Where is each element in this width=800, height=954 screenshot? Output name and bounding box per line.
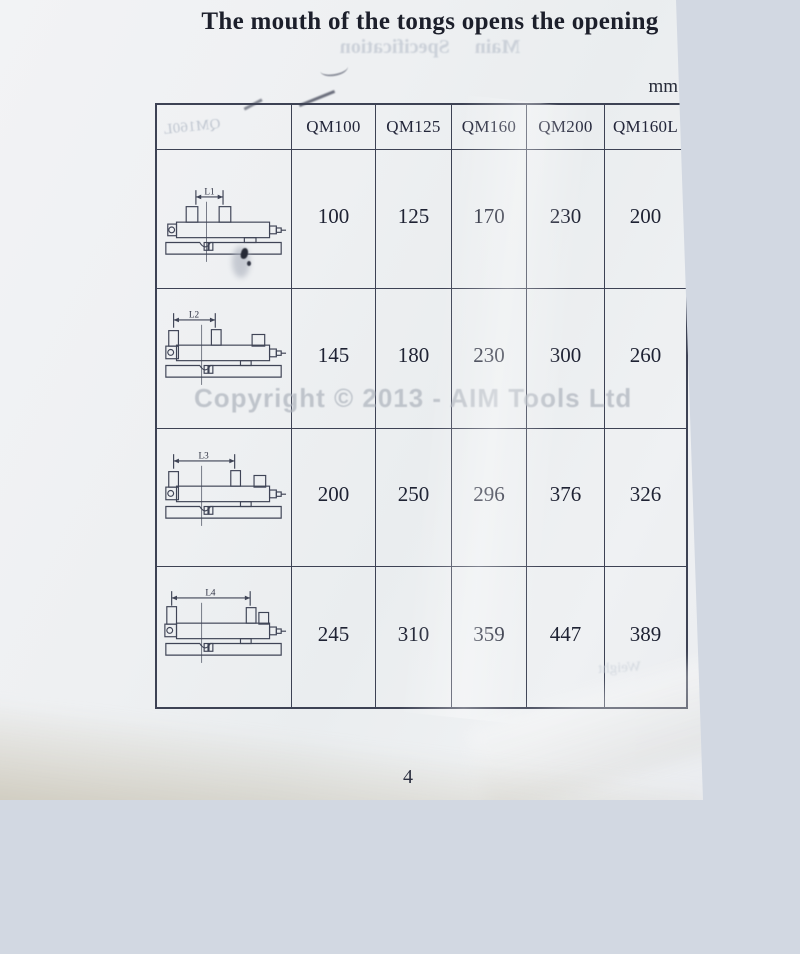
column-header-qm125: QM125 [376,105,452,150]
vise-diagram-l4: L4 [157,567,292,707]
table-cell: 296 [452,429,527,567]
unit-label: mm [628,76,678,98]
table-cell: 100 [292,150,376,289]
table-cell: 359 [452,567,527,707]
page-title: The mouth of the tongs opens the opening [175,8,685,36]
table-cell: 125 [376,150,452,289]
bleedthrough-text: QM160L [162,116,221,139]
column-header-qm100: QM100 [292,105,376,150]
table-cell: 447 [527,567,605,707]
table-cell: 200 [292,429,376,567]
table-cell: 230 [527,150,605,289]
dimension-label: L3 [199,450,210,460]
column-header-qm160l: QM160L [605,105,686,150]
dimension-label: L1 [204,187,215,197]
bleedthrough-main-specification: Main Specification [285,36,575,59]
column-header-qm200: QM200 [527,105,605,150]
table-cell: 250 [376,429,452,567]
page-number: 4 [388,766,428,789]
table-cell: 326 [605,429,686,567]
vise-diagram-l3: L3 [157,429,292,567]
dimension-label: L2 [189,309,200,319]
table-cell: 245 [292,567,376,707]
document-page: Main Specification The mouth of the tong… [0,0,800,800]
table-corner-cell: QM160L [157,105,292,150]
paper-crease-mark [319,60,349,79]
vise-diagram-l1: L1 [157,150,292,289]
table-cell: 200 [605,150,686,289]
table-cell: 170 [452,150,527,289]
dimension-label: L4 [205,588,216,598]
column-header-qm160: QM160 [452,105,527,150]
ink-dot [247,261,251,266]
table-cell: 376 [527,429,605,567]
watermark: Copyright © 2013 - AIM Tools Ltd [194,383,634,414]
table-cell: 310 [376,567,452,707]
